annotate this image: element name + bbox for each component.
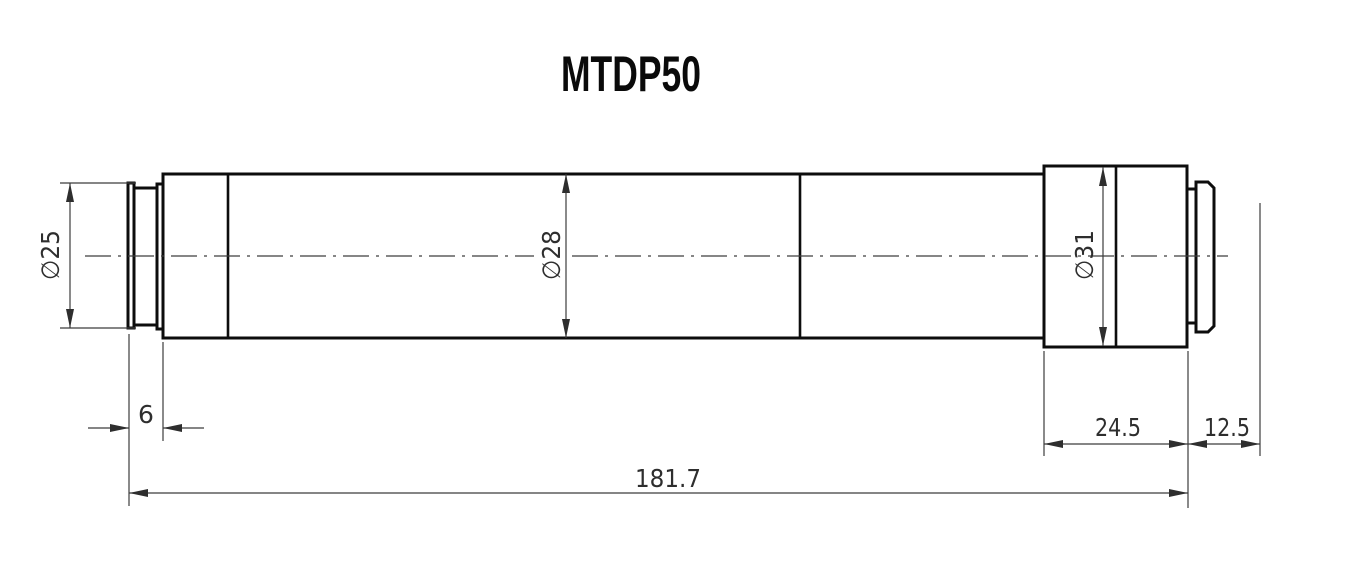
dim-label-front-diameter: ∅25 [36,230,65,280]
technical-drawing: MTDP50 ∅25 ∅2 [0,0,1350,563]
arrow-right-icon [1169,489,1188,497]
arrow-right-icon [1169,440,1188,448]
dim-label-body-diameter: ∅28 [537,230,566,280]
page-title: MTDP50 [561,46,701,102]
dim-label-overall-length: 181.7 [635,464,701,493]
arrow-down-icon [66,309,74,328]
dimension-front-ring-length: 6 [88,334,204,506]
dim-label-mount-length: 24.5 [1095,413,1141,442]
dimension-mount-length: 24.5 [1044,351,1188,508]
dimension-overall-length: 181.7 [129,464,1188,497]
arrow-right-icon [110,424,129,432]
dim-label-mount-diameter: ∅31 [1070,230,1099,280]
rear-cap [1196,182,1214,332]
dimension-back-distance: 12.5 [1188,413,1260,448]
dim-label-back-distance: 12.5 [1204,413,1250,442]
arrow-left-icon [163,424,182,432]
arrow-up-icon [66,183,74,202]
arrow-left-icon [1044,440,1063,448]
drawing-canvas: MTDP50 ∅25 ∅2 [0,0,1350,563]
dim-label-front-ring-length: 6 [138,400,154,429]
arrow-left-icon [129,489,148,497]
main-body [163,174,1044,338]
